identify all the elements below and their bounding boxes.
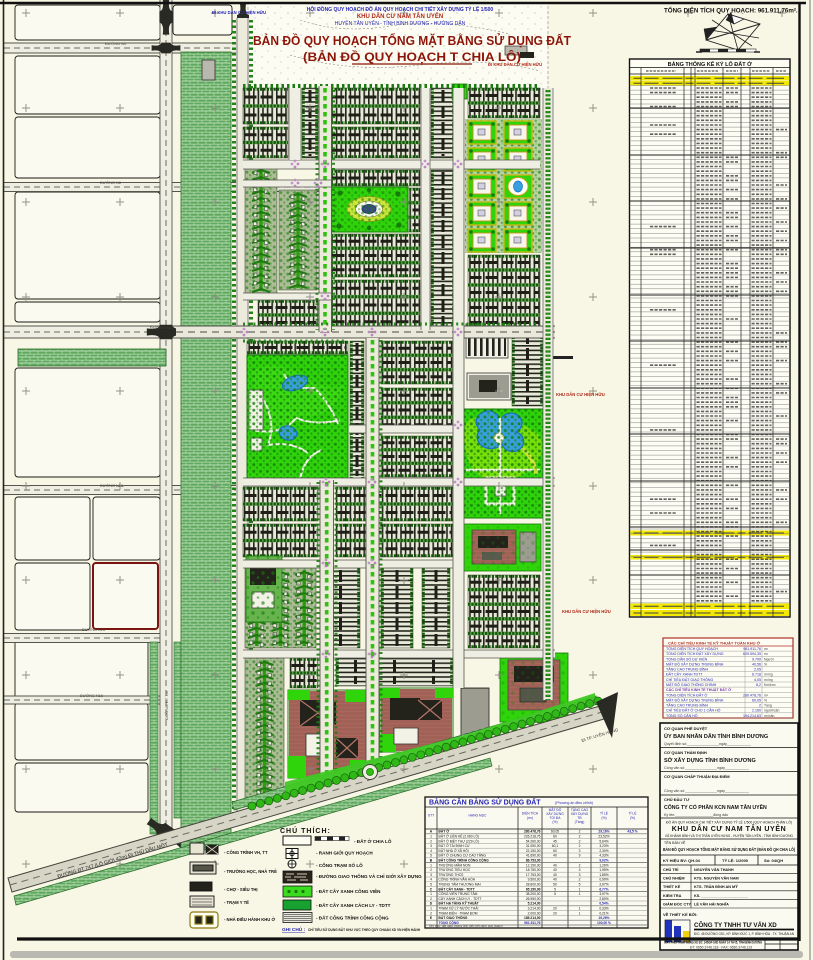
- svg-text:KHU DÂN CƯ HIỆN HỮU: KHU DÂN CƯ HIỆN HỮU: [556, 392, 605, 397]
- svg-text:12.150,00: 12.150,00: [526, 863, 541, 867]
- svg-text:0,33%: 0,33%: [599, 907, 608, 911]
- svg-text:2: 2: [579, 830, 581, 834]
- svg-text:TRẠM ĐIỆN - TRẠM BƠM: TRẠM ĐIỆN - TRẠM BƠM: [439, 910, 478, 915]
- svg-text:KHU DÂN CƯ HIỆN HỮU: KHU DÂN CƯ HIỆN HỮU: [562, 609, 611, 614]
- svg-text:9: 9: [579, 854, 581, 858]
- svg-text:86.753,00: 86.753,00: [526, 859, 541, 863]
- svg-text:60,05: 60,05: [752, 698, 761, 702]
- svg-text:ĐƯỜNG N8: ĐƯỜNG N8: [100, 180, 121, 185]
- svg-text:SỞ XÂY DỰNG TỈNH BÌNH DƯƠNG: SỞ XÂY DỰNG TỈNH BÌNH DƯƠNG: [664, 756, 756, 764]
- svg-text:(m²): (m²): [527, 816, 533, 820]
- svg-text:40: 40: [553, 873, 557, 877]
- svg-text:60,05: 60,05: [551, 830, 559, 834]
- svg-text:m²/ng: m²/ng: [764, 678, 773, 682]
- svg-text:1: 1: [579, 892, 581, 896]
- svg-text:5: 5: [430, 883, 432, 887]
- svg-text:6.718: 6.718: [752, 673, 761, 677]
- svg-text:BẢNG THỐNG KÊ KÝ LÔ ĐẤT Ở: BẢNG THỐNG KÊ KÝ LÔ ĐẤT Ở: [668, 60, 752, 68]
- svg-text:Người: Người: [764, 657, 774, 661]
- svg-text:8,2: 8,2: [756, 683, 761, 687]
- svg-text:CƠ QUAN PHÊ DUYỆT: CƠ QUAN PHÊ DUYỆT: [664, 726, 708, 731]
- svg-text:HẠNG MỤC: HẠNG MỤC: [469, 814, 488, 818]
- svg-text:Công văn số:________________ng: Công văn số:________________ngày________…: [664, 789, 750, 793]
- svg-text:TỶ LỆ: 1/2000: TỶ LỆ: 1/2000: [722, 858, 749, 863]
- svg-text:1: 1: [430, 907, 432, 911]
- svg-text:ĐẤT Ở CHUNG CƯ CAO TẦNG: ĐẤT Ở CHUNG CƯ CAO TẦNG: [439, 853, 487, 858]
- svg-text:280.478,76: 280.478,76: [524, 830, 541, 834]
- svg-text:ĐƯỜNG N4: ĐƯỜNG N4: [105, 41, 126, 46]
- svg-text:ĐẤT Ở TÁI ĐỊNH CƯ: ĐẤT Ở TÁI ĐỊNH CƯ: [439, 843, 471, 848]
- svg-text:KS. ______________________: KS. ______________________: [694, 894, 749, 898]
- svg-text:ĐẤT CÂY XANH - TDTT: ĐẤT CÂY XANH - TDTT: [439, 886, 475, 891]
- svg-text:9,02%: 9,02%: [599, 859, 608, 863]
- svg-text:ĐẤT CÂY XANH TDTT: ĐẤT CÂY XANH TDTT: [666, 673, 703, 677]
- svg-text:- TRẠM Y TẾ: - TRẠM Y TẾ: [224, 900, 249, 905]
- svg-text:CÁC CHỈ TIÊU KINH TẾ THUẬT ĐẤT: CÁC CHỈ TIÊU KINH TẾ THUẬT ĐẤT Ở: [666, 687, 732, 692]
- svg-text:9.500,00: 9.500,00: [528, 878, 541, 882]
- svg-text:20: 20: [553, 911, 557, 915]
- svg-text:- ĐẤT CÂY XANH CÁCH LY - TDTT: - ĐẤT CÂY XANH CÁCH LY - TDTT: [316, 902, 391, 908]
- svg-text:Quyết định số:________________: Quyết định số:________________ngày______…: [664, 742, 752, 746]
- svg-text:người/căn: người/căn: [764, 709, 780, 713]
- svg-text:CHỦ ĐẦU TƯ: CHỦ ĐẦU TƯ: [664, 797, 690, 802]
- svg-text:185.214,00: 185.214,00: [524, 916, 541, 920]
- svg-text:1: 1: [430, 892, 432, 896]
- svg-text:2,97%: 2,97%: [599, 883, 608, 887]
- svg-text:TỔNG DIỆN TÍCH ĐẤT XÂY DỰNG: TỔNG DIỆN TÍCH ĐẤT XÂY DỰNG: [666, 651, 724, 656]
- svg-text:Ký tên:___________________đóng: Ký tên:___________________đóng dấu: [664, 813, 728, 817]
- svg-text:60: 60: [553, 835, 557, 839]
- svg-text:XÃ KHÁNH BÌNH VÀ THỊ TRẤN UYÊN: XÃ KHÁNH BÌNH VÀ THỊ TRẤN UYÊN HƯNG - HU…: [665, 833, 793, 838]
- svg-text:CHỈ TIÊU SỬ DỤNG ĐẤT KHU VỰC T: CHỈ TIÊU SỬ DỤNG ĐẤT KHU VỰC THEO QUY CH…: [308, 927, 420, 932]
- svg-text:5.214,00: 5.214,00: [528, 902, 541, 906]
- svg-text:- ĐẤT CÂY XANH CÔNG VIÊN: - ĐẤT CÂY XANH CÔNG VIÊN: [316, 887, 381, 894]
- svg-text:STT: STT: [428, 814, 434, 818]
- svg-text:28.600,00: 28.600,00: [526, 883, 541, 887]
- svg-text:ĐƯỜNG N15: ĐƯỜNG N15: [82, 627, 105, 632]
- svg-text:Số: 04/QH: Số: 04/QH: [764, 858, 783, 863]
- svg-text:Công văn số:________________ng: Công văn số:________________ngày________…: [664, 766, 750, 770]
- svg-text:961.911,76: 961.911,76: [743, 647, 761, 651]
- svg-text:31.050,00: 31.050,00: [526, 844, 541, 848]
- svg-text:100,00 %: 100,00 %: [597, 921, 611, 925]
- svg-text:TỔNG DIỆN TÍCH ĐẤT Ở: TỔNG DIỆN TÍCH ĐẤT Ở: [666, 692, 707, 697]
- svg-text:ĐỒ ÁN QUY HOẠCH CHI TIẾT XÂY D: ĐỒ ÁN QUY HOẠCH CHI TIẾT XÂY DỰNG TỶ LỆ …: [666, 820, 792, 825]
- svg-text:KÝ HIỆU BV: QH-04: KÝ HIỆU BV: QH-04: [663, 858, 701, 863]
- svg-text:5: 5: [554, 892, 556, 896]
- svg-text:40: 40: [553, 868, 557, 872]
- svg-text:CÔNG TY CỔ PHẦN KCN NAM TÂN UY: CÔNG TY CỔ PHẦN KCN NAM TÂN UYÊN: [664, 803, 767, 811]
- svg-text:2: 2: [430, 868, 432, 872]
- svg-text:Ghi chú: đất giao thông tính đ: Ghi chú: đất giao thông tính đến hết ran…: [429, 924, 503, 928]
- svg-text:%: %: [764, 662, 767, 666]
- svg-text:194.214,63: 194.214,63: [743, 714, 761, 718]
- svg-text:ĐƯỜNG ĐT 747: ĐƯỜNG ĐT 747: [164, 689, 169, 720]
- svg-text:1: 1: [579, 907, 581, 911]
- svg-text:KTS. TRẦN ĐÌNH AN MỸ: KTS. TRẦN ĐÌNH AN MỸ: [694, 884, 738, 889]
- svg-text:TRUNG TÂM THƯƠNG MẠI: TRUNG TÂM THƯƠNG MẠI: [439, 883, 481, 887]
- svg-text:m²/căn: m²/căn: [764, 714, 774, 718]
- svg-text:Tầng: Tầng: [764, 704, 772, 708]
- svg-text:19,26%: 19,26%: [598, 916, 609, 920]
- svg-text:CHỦ NHIỆM: CHỦ NHIỆM: [663, 876, 685, 881]
- svg-text:CÔNG TRÌNH VĂN HÓA: CÔNG TRÌNH VĂN HÓA: [439, 877, 476, 882]
- svg-text:TÊN BẢN VẼ: TÊN BẢN VẼ: [664, 840, 686, 845]
- svg-text:41.690,00: 41.690,00: [526, 854, 541, 858]
- svg-text:2: 2: [579, 863, 581, 867]
- svg-text:BẢN ĐỒ QUY HOẠCH TỔNG MẶT BẰNG: BẢN ĐỒ QUY HOẠCH TỔNG MẶT BẰNG SỬ DỤNG Đ…: [663, 847, 795, 852]
- svg-text:VẼ THIẾT KẾ BỞI:: VẼ THIẾT KẾ BỞI:: [663, 912, 698, 917]
- svg-text:ĐƯỜNG N11: ĐƯỜNG N11: [150, 325, 173, 330]
- svg-text:4,33%: 4,33%: [599, 854, 608, 858]
- svg-text:961.911,76: 961.911,76: [524, 921, 540, 925]
- svg-text:MẬT ĐỘ GIAO THÔNG CHÍNH: MẬT ĐỘ GIAO THÔNG CHÍNH: [666, 682, 717, 687]
- svg-text:9.700: 9.700: [752, 657, 761, 661]
- svg-text:ĐẤT GIAO THÔNG: ĐẤT GIAO THÔNG: [439, 915, 468, 920]
- svg-text:KTS. NGUYỄN VĂN NAM: KTS. NGUYỄN VĂN NAM: [694, 876, 739, 881]
- svg-text:- ĐƯỜNG GIAO THÔNG VÀ CHỈ GIỚI: - ĐƯỜNG GIAO THÔNG VÀ CHỈ GIỚI XÂY DỰNG: [316, 872, 422, 879]
- svg-text:ĐI KHU DÂN CƯ HIỆN HỮU: ĐI KHU DÂN CƯ HIỆN HỮU: [488, 62, 542, 67]
- svg-text:KHU DÂN CƯ NAM TÂN UYÊN: KHU DÂN CƯ NAM TÂN UYÊN: [357, 12, 443, 20]
- svg-text:45: 45: [553, 839, 557, 843]
- svg-text:1: 1: [579, 911, 581, 915]
- svg-text:2: 2: [579, 835, 581, 839]
- svg-text:GIÁM ĐỐC CTY: GIÁM ĐỐC CTY: [663, 901, 692, 906]
- svg-text:ĐẤT CÔNG TRÌNH CÔNG CỘNG: ĐẤT CÔNG TRÌNH CÔNG CỘNG: [439, 858, 490, 863]
- svg-text:(%): (%): [630, 816, 635, 820]
- svg-text:40: 40: [553, 878, 557, 882]
- svg-text:CHÚ THÍCH:: CHÚ THÍCH:: [280, 826, 331, 835]
- svg-text:280.478,76: 280.478,76: [743, 693, 761, 697]
- svg-text:1,85%: 1,85%: [599, 873, 608, 877]
- svg-text:3.214,00: 3.214,00: [528, 907, 541, 911]
- svg-text:6,77%: 6,77%: [599, 887, 608, 891]
- svg-text:TỔNG DIỆN TÍCH QUY HOẠCH: TỔNG DIỆN TÍCH QUY HOẠCH: [666, 646, 718, 651]
- svg-text:5: 5: [554, 887, 556, 891]
- svg-text:40,56: 40,56: [752, 662, 761, 666]
- svg-text:ĐƯỜNG N16: ĐƯỜNG N16: [80, 693, 103, 698]
- svg-text:- NHÀ ĐIỀU HÀNH KHU Ở: - NHÀ ĐIỀU HÀNH KHU Ở: [224, 917, 275, 922]
- svg-text:60: 60: [553, 849, 557, 853]
- svg-text:MẬT ĐỘ XÂY DỰNG TRUNG BÌNH: MẬT ĐỘ XÂY DỰNG TRUNG BÌNH: [666, 661, 724, 666]
- svg-text:2: 2: [759, 704, 761, 708]
- svg-text:ĐẤT Ở BIỆT THỰ (229 LÔ): ĐẤT Ở BIỆT THỰ (229 LÔ): [439, 838, 479, 843]
- svg-text:40: 40: [553, 863, 557, 867]
- svg-text:NGUYỄN VĂN THANH: NGUYỄN VĂN THANH: [694, 867, 734, 872]
- svg-text:Đ/C: 45 ĐƯỜNG GS1, KP. BÌNH ĐỨ: Đ/C: 45 ĐƯỜNG GS1, KP. BÌNH ĐỨC 1, P. BÌ…: [694, 931, 795, 936]
- svg-text:3: 3: [579, 868, 581, 872]
- svg-text:2: 2: [430, 911, 432, 915]
- svg-text:- CÔNG TRÌNH VH, TT: - CÔNG TRÌNH VH, TT: [224, 850, 268, 855]
- svg-text:CÔNG VIÊN TRUNG TÂM: CÔNG VIÊN TRUNG TÂM: [439, 891, 478, 896]
- svg-text:CÂY XANH CÁCH LY - TDTT: CÂY XANH CÁCH LY - TDTT: [439, 897, 482, 901]
- svg-text:1,26%: 1,26%: [599, 863, 608, 867]
- svg-text:TRƯỜNG MẦM NON: TRƯỜNG MẦM NON: [439, 862, 471, 867]
- svg-text:2.160: 2.160: [752, 709, 761, 713]
- svg-text:3: 3: [579, 849, 581, 853]
- svg-text:- ĐẤT CÔNG TRÌNH CÔNG CỘNG: - ĐẤT CÔNG TRÌNH CÔNG CỘNG: [316, 914, 389, 921]
- svg-text:54.260,00: 54.260,00: [526, 839, 541, 843]
- svg-text:2: 2: [579, 844, 581, 848]
- svg-text:65.150,00: 65.150,00: [526, 887, 541, 891]
- svg-text:40: 40: [553, 854, 557, 858]
- svg-text:- CHỢ - SIÊU THỊ: - CHỢ - SIÊU THỊ: [224, 887, 258, 892]
- svg-text:43,5 %: 43,5 %: [627, 830, 637, 834]
- svg-text:2: 2: [579, 878, 581, 882]
- svg-text:3,23%: 3,23%: [599, 844, 608, 848]
- svg-text:26.950,00: 26.950,00: [526, 897, 541, 901]
- svg-text:CÁC CHỈ TIÊU KINH TẾ KỸ THUẬT: CÁC CHỈ TIÊU KINH TẾ KỸ THUẬT TOÀN KHU Ở: [668, 641, 761, 646]
- svg-text:3: 3: [579, 873, 581, 877]
- svg-text:TRẠM XỬ LÝ NƯỚC THẢI: TRẠM XỬ LÝ NƯỚC THẢI: [439, 906, 479, 911]
- svg-text:2,05: 2,05: [754, 668, 761, 672]
- svg-text:3: 3: [430, 844, 432, 848]
- svg-text:609.594,35: 609.594,35: [743, 652, 761, 656]
- svg-text:38.200,00: 38.200,00: [526, 892, 541, 896]
- svg-text:- CỔNG TRẠM SỐ LÔ: - CỔNG TRẠM SỐ LÔ: [316, 861, 363, 868]
- svg-text:0,54%: 0,54%: [599, 902, 608, 906]
- svg-text:CƠ QUAN CHẤP THUẬN ĐỊA ĐIỂM: CƠ QUAN CHẤP THUẬN ĐỊA ĐIỂM: [664, 774, 730, 779]
- svg-text:CƠ QUAN THẨM ĐỊNH: CƠ QUAN THẨM ĐỊNH: [664, 750, 707, 755]
- svg-text:23,52%: 23,52%: [598, 835, 609, 839]
- svg-text:(Phương án điều chỉnh): (Phương án điều chỉnh): [555, 801, 593, 805]
- svg-text:- RANH GIỚI QUY HOẠCH: - RANH GIỚI QUY HOẠCH: [316, 849, 373, 856]
- svg-text:3: 3: [430, 873, 432, 877]
- svg-text:KIỂM TRA: KIỂM TRA: [663, 893, 682, 898]
- svg-text:29,16%: 29,16%: [598, 830, 609, 834]
- svg-text:1: 1: [430, 863, 432, 867]
- svg-text:2: 2: [430, 839, 432, 843]
- svg-text:17.753,00: 17.753,00: [526, 873, 541, 877]
- svg-text:50: 50: [553, 883, 557, 887]
- svg-text:5,64%: 5,64%: [599, 839, 608, 843]
- svg-text:GHI CHÚ :: GHI CHÚ :: [282, 926, 306, 933]
- svg-text:0,99%: 0,99%: [599, 878, 608, 882]
- svg-text:4,05: 4,05: [754, 678, 761, 682]
- svg-text:TỔNG SỐ CĂN HỘ: TỔNG SỐ CĂN HỘ: [666, 713, 698, 718]
- svg-text:HUYỆN TÂN UYÊN - TỈNH BÌNH DƯƠ: HUYỆN TÂN UYÊN - TỈNH BÌNH DƯƠNG - HƯỚNG…: [335, 19, 466, 27]
- svg-text:20: 20: [553, 907, 557, 911]
- svg-text:%: %: [764, 698, 767, 702]
- svg-text:1,95%: 1,95%: [599, 868, 608, 872]
- svg-text:(%): (%): [552, 820, 557, 824]
- svg-text:CHỦ TRÌ: CHỦ TRÌ: [663, 867, 678, 872]
- svg-text:LÊ VĂN HẢI NGHĨA: LÊ VĂN HẢI NGHĨA: [694, 901, 729, 906]
- svg-text:5: 5: [430, 854, 432, 858]
- svg-text:ĐẤT NHÀ Ở XÃ HỘI: ĐẤT NHÀ Ở XÃ HỘI: [439, 848, 469, 853]
- svg-text:KHU DÂN CƯ NAM TÂN UYÊN: KHU DÂN CƯ NAM TÂN UYÊN: [672, 824, 787, 833]
- svg-text:MẬT ĐỘ XÂY DỰNG TRUNG BÌNH: MẬT ĐỘ XÂY DỰNG TRUNG BÌNH: [666, 697, 724, 702]
- svg-text:5: 5: [579, 883, 581, 887]
- svg-text:60,1: 60,1: [552, 844, 559, 848]
- svg-text:ĐẤT HẠ TẦNG KỸ THUẬT: ĐẤT HẠ TẦNG KỸ THUẬT: [439, 901, 479, 906]
- svg-text:1: 1: [579, 887, 581, 891]
- svg-text:- ĐẤT Ở CHIA LÔ: - ĐẤT Ở CHIA LÔ: [354, 837, 392, 844]
- svg-text:(Tầng): (Tầng): [575, 820, 585, 824]
- svg-text:THIẾT KẾ: THIẾT KẾ: [663, 884, 681, 889]
- svg-text:4: 4: [430, 878, 432, 882]
- svg-text:TẦNG CAO TRUNG BÌNH: TẦNG CAO TRUNG BÌNH: [666, 668, 708, 672]
- svg-text:2.000,00: 2.000,00: [528, 911, 541, 915]
- svg-text:226.218,76: 226.218,76: [524, 835, 541, 839]
- svg-text:HỘI ĐỒNG QUY HOẠCH ĐỒ ÁN QUY H: HỘI ĐỒNG QUY HOẠCH ĐỒ ÁN QUY HOẠCH CHI T…: [307, 5, 494, 13]
- svg-text:TRƯỜNG TIỂU HỌC: TRƯỜNG TIỂU HỌC: [439, 867, 471, 872]
- svg-text:TRƯỜNG THCS: TRƯỜNG THCS: [439, 872, 465, 877]
- svg-text:CHỈ TIÊU ĐẤT Ở CHO 1 CĂN HỘ: CHỈ TIÊU ĐẤT Ở CHO 1 CĂN HỘ: [666, 708, 721, 713]
- svg-text:CÔNG TY TNHH TƯ VẤN XD: CÔNG TY TNHH TƯ VẤN XD: [694, 921, 777, 929]
- svg-text:ĐẤT Ở LIÊN KẾ (2.060 LÔ): ĐẤT Ở LIÊN KẾ (2.060 LÔ): [439, 834, 480, 839]
- svg-text:TẦNG CAO TRUNG BÌNH: TẦNG CAO TRUNG BÌNH: [666, 704, 708, 708]
- svg-text:TỔNG DÂN SỐ DỰ KIẾN: TỔNG DÂN SỐ DỰ KIẾN: [666, 656, 708, 661]
- svg-text:ĐƯỜNG N13: ĐƯỜNG N13: [100, 483, 123, 488]
- svg-text:2: 2: [430, 897, 432, 901]
- svg-text:- TRƯỜNG HỌC, NHÀ TRẺ: - TRƯỜNG HỌC, NHÀ TRẺ: [224, 869, 277, 874]
- svg-text:0,21%: 0,21%: [599, 911, 608, 915]
- svg-text:2: 2: [579, 839, 581, 843]
- svg-text:18.750,00: 18.750,00: [526, 868, 541, 872]
- svg-text:(%): (%): [601, 816, 606, 820]
- svg-text:CHỈ TIÊU ĐẤT GIAO THÔNG: CHỈ TIÊU ĐẤT GIAO THÔNG: [666, 677, 714, 682]
- svg-text:4: 4: [430, 849, 432, 853]
- svg-text:BẢN ĐỒ QUY HOẠCH TỔNG MẶT BẰNG: BẢN ĐỒ QUY HOẠCH TỔNG MẶT BẰNG SỬ DỤNG Đ…: [253, 33, 571, 48]
- svg-text:Km/km²: Km/km²: [764, 683, 777, 687]
- svg-text:2,80%: 2,80%: [599, 897, 608, 901]
- svg-text:3,97%: 3,97%: [599, 892, 608, 896]
- svg-text:22.150,00: 22.150,00: [526, 849, 541, 853]
- svg-text:1: 1: [430, 835, 432, 839]
- svg-text:ĐẤT Ở: ĐẤT Ở: [439, 829, 450, 834]
- svg-text:2,30%: 2,30%: [599, 849, 608, 853]
- svg-text:ỦY BAN NHÂN DÂN TỈNH BÌNH DƯƠN: ỦY BAN NHÂN DÂN TỈNH BÌNH DƯƠNG: [664, 732, 768, 740]
- svg-text:m²/ng: m²/ng: [764, 673, 773, 677]
- svg-text:ĐT: 0650.3746.118 - FAX: 0650.: ĐT: 0650.3746.118 - FAX: 0650.3746.119: [690, 946, 752, 950]
- svg-text:ĐI KHU DÂN CƯ HIỆN HỮU: ĐI KHU DÂN CƯ HIỆN HỮU: [212, 10, 266, 15]
